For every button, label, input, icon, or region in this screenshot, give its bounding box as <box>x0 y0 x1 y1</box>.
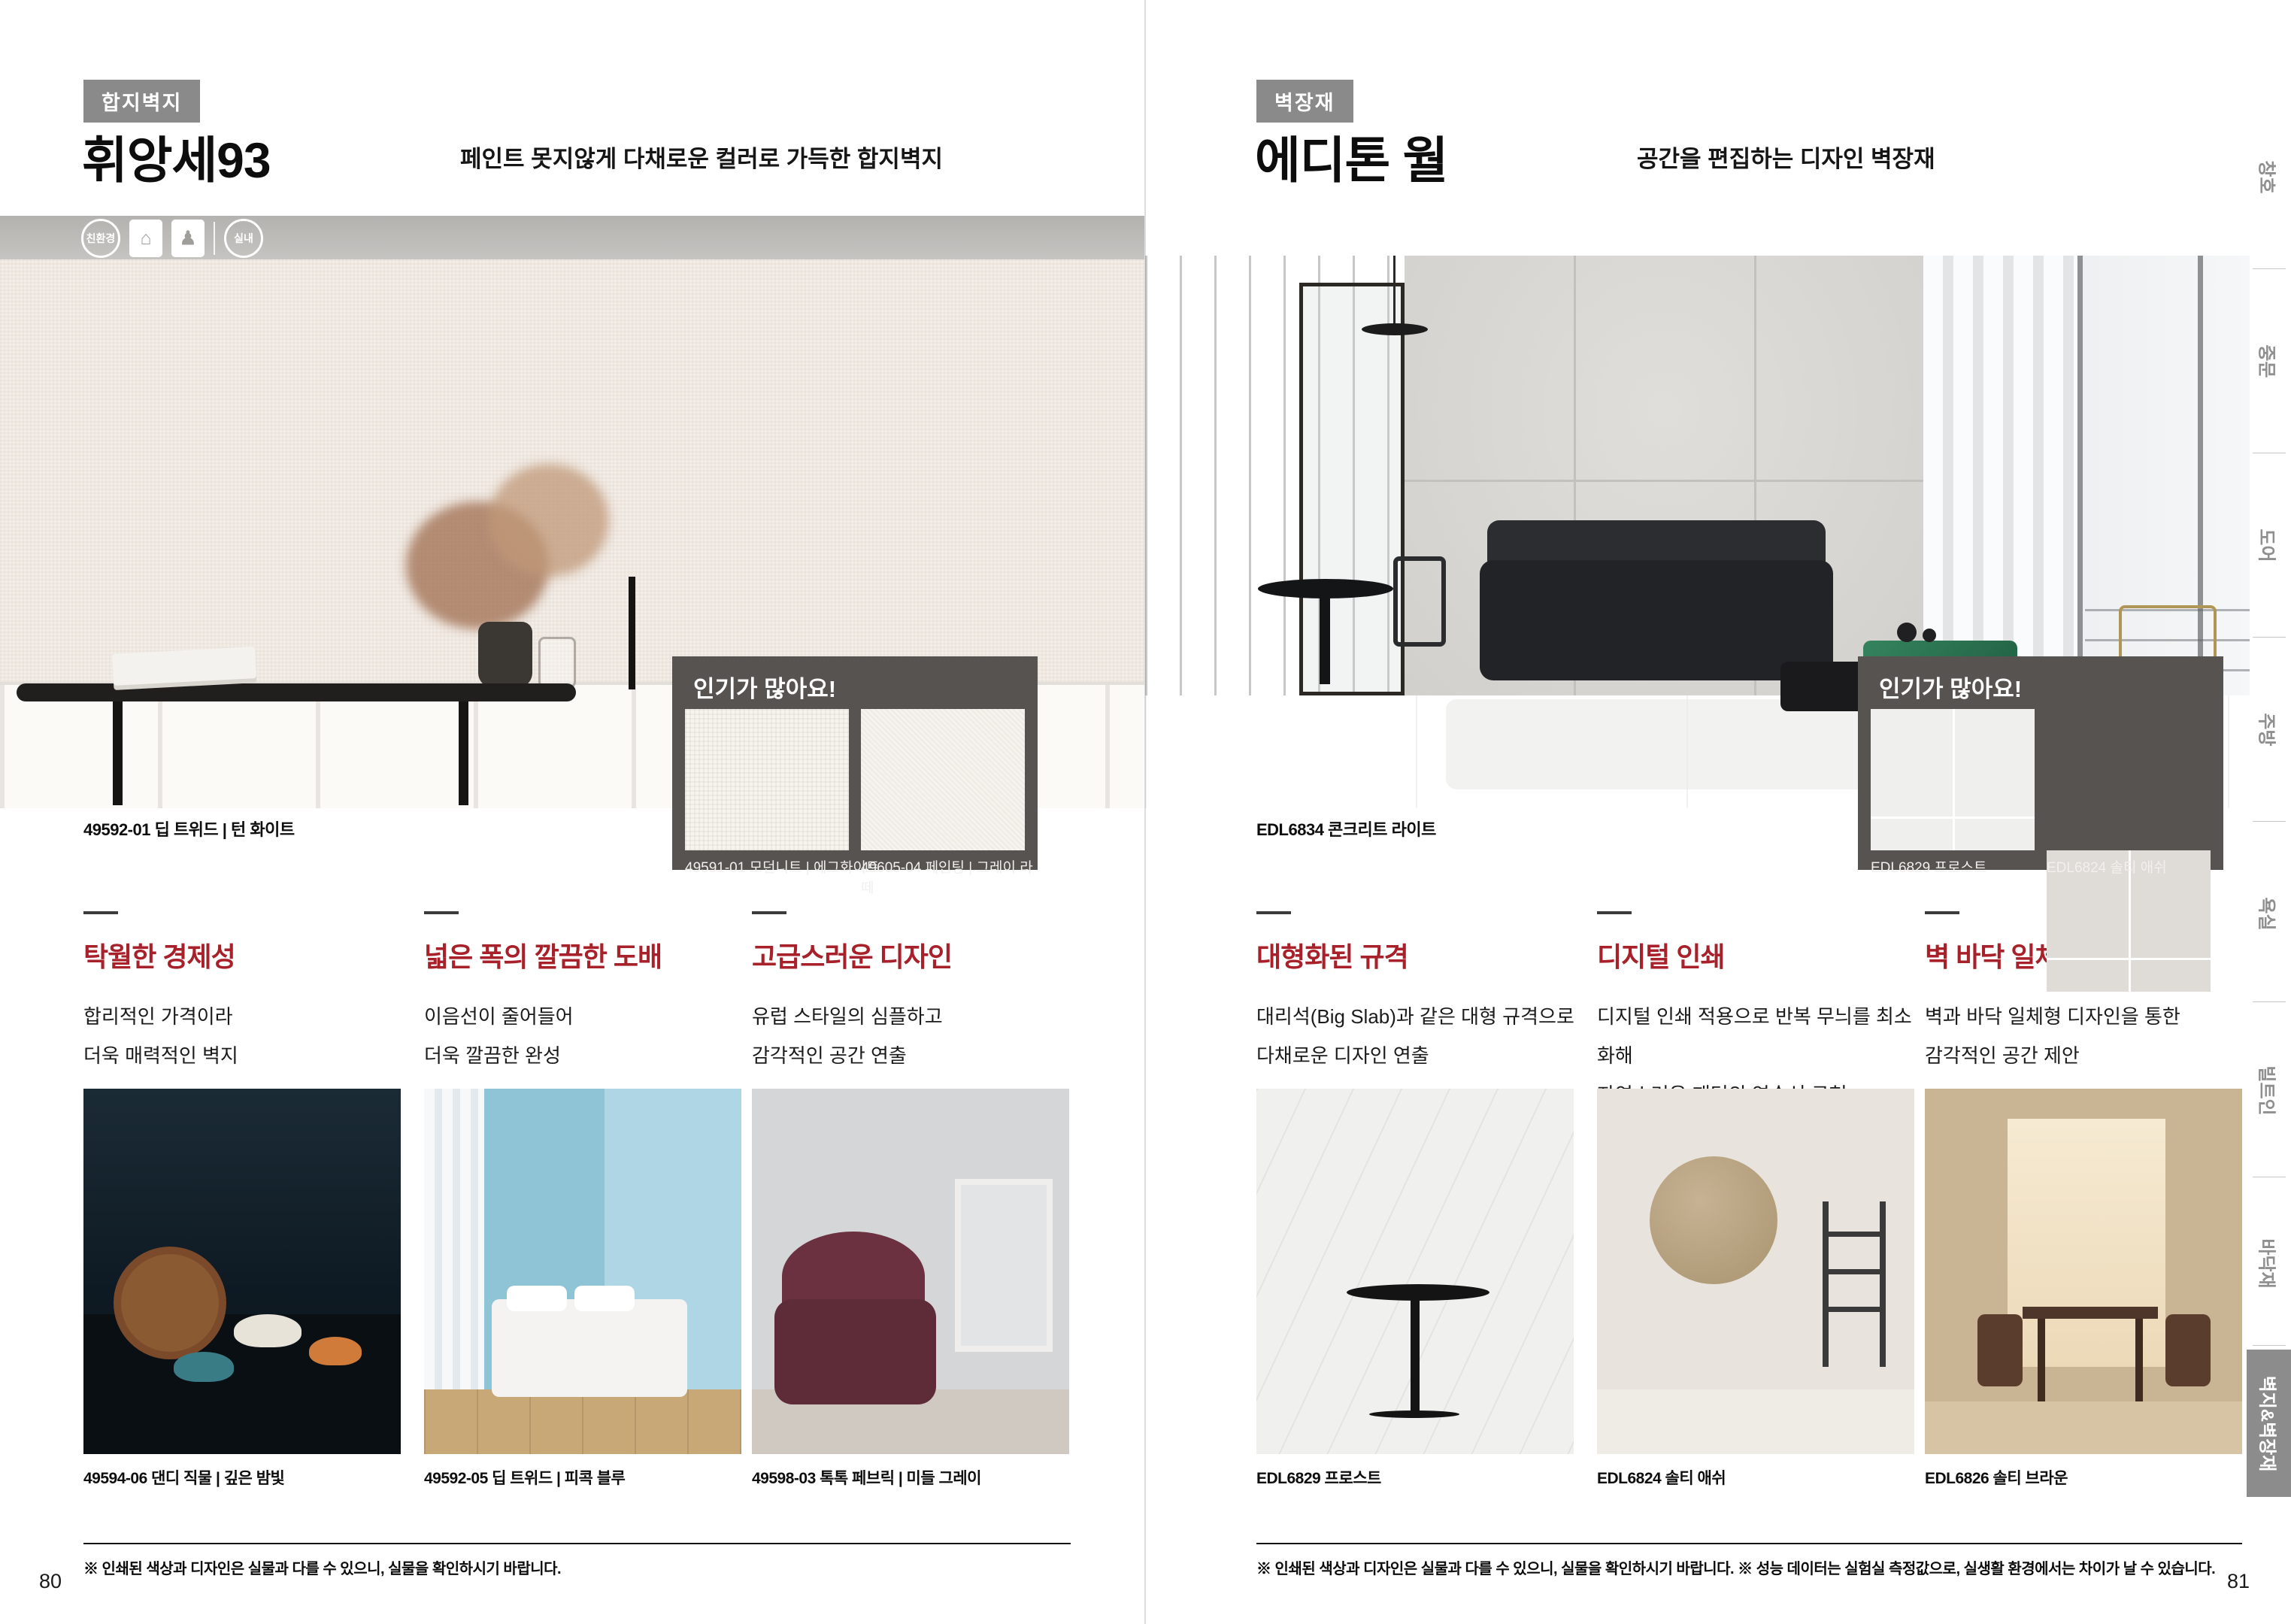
product-caption: EDL6824 솔티 애쉬 <box>1597 1466 1726 1489</box>
swatch-label: EDL6824 솔티 애쉬 <box>2047 856 2167 877</box>
ladder-rung <box>1823 1232 1886 1237</box>
round-mirror <box>1650 1156 1777 1284</box>
sidebar-separator <box>2253 453 2286 453</box>
sidebar-tab-doors[interactable]: 도어 <box>2247 500 2291 590</box>
popular-title: 인기가 많아요! <box>1879 670 2022 704</box>
feature-heading: 디지털 인쇄 <box>1597 935 1928 974</box>
feature-line: 더욱 매력적인 벽지 <box>83 1036 414 1075</box>
feature-heading: 탁월한 경제성 <box>83 935 414 974</box>
page-title-right: 에디톤 월 <box>1255 120 1447 192</box>
towel-ladder <box>1823 1201 1829 1367</box>
care-person-icon: ♟ <box>171 220 205 257</box>
feature-heading: 대형화된 규격 <box>1256 935 1587 974</box>
popular-box-left: 인기가 많아요! 49591-01 모던니트 | 에그화이트 49605-04 … <box>672 656 1038 870</box>
glass-partition <box>1299 283 1405 695</box>
boucle-armchair <box>774 1299 936 1404</box>
sidebar-separator <box>2253 268 2286 269</box>
popular-box-right: 인기가 많아요! EDL6829 프로스트 EDL6824 솔티 애쉬 <box>1858 656 2223 870</box>
tile-swatch <box>1871 709 2035 850</box>
page-number-right: 81 <box>2227 1570 2250 1593</box>
candlestick <box>629 577 635 689</box>
swatch-label: 49605-04 페인팅 | 그레이 라떼 <box>861 856 1038 897</box>
table-pedestal <box>1320 594 1330 684</box>
feature-heading: 고급스러운 디자인 <box>752 935 1083 974</box>
wallpaper-swatch <box>861 709 1025 850</box>
feature-line: 이음선이 줄어들어 <box>424 997 755 1036</box>
shelf-unit <box>955 1179 1053 1352</box>
footnote-right: ※ 인쇄된 색상과 디자인은 실물과 다를 수 있으니, 실물을 확인하시기 바… <box>1256 1543 2242 1578</box>
bowl <box>234 1314 302 1347</box>
sidebar-tab-bath[interactable]: 욕실 <box>2247 868 2291 959</box>
bowl <box>309 1337 362 1365</box>
feature-line: 감각적인 공간 제안 <box>1925 1036 2256 1075</box>
feature-line: 디지털 인쇄 적용으로 반복 무늬를 최소화해 <box>1597 997 1928 1075</box>
feature-line: 대리석(Big Slab)과 같은 대형 규격으로 <box>1256 997 1587 1036</box>
product-caption: EDL6829 프로스트 <box>1256 1466 1381 1489</box>
product-photo-dandy <box>83 1089 401 1454</box>
product-caption: 49598-03 톡톡 페브릭 | 미들 그레이 <box>752 1466 981 1489</box>
sidebar-tab-interior-doors[interactable]: 중문 <box>2247 316 2291 406</box>
feature-big-slab: 대형화된 규격 대리석(Big Slab)과 같은 대형 규격으로 다채로운 디… <box>1256 911 1587 1075</box>
product-caption: EDL6826 솔티 브라운 <box>1925 1466 2068 1489</box>
certification-badges: 친환경 ⌂ ♟ 실내 <box>81 218 263 259</box>
eco-cert-badge: 친환경 <box>81 219 120 258</box>
feature-tick <box>83 911 118 914</box>
swatch-label: EDL6829 프로스트 <box>1871 856 1986 877</box>
feature-wide-width: 넓은 폭의 깔끔한 도배 이음선이 줄어들어 더욱 깔끔한 완성 <box>424 911 755 1075</box>
feature-line: 다채로운 디자인 연출 <box>1256 1036 1587 1075</box>
feature-tick <box>1597 911 1632 914</box>
feature-line: 감각적인 공간 연출 <box>752 1036 1083 1075</box>
sidebar-separator <box>2253 1177 2286 1177</box>
badge-divider <box>214 222 215 255</box>
sidebar-tab-flooring[interactable]: 바닥재 <box>2247 1218 2291 1308</box>
wooden-tray <box>114 1247 226 1359</box>
bed <box>492 1299 687 1397</box>
pillow <box>574 1286 635 1311</box>
pendant-lamp <box>1362 323 1428 335</box>
sidebar-tab-wallpaper-active[interactable]: 벽지&벽장재 <box>2247 1350 2291 1497</box>
table-leg <box>2038 1319 2045 1401</box>
feature-line: 더욱 깔끔한 완성 <box>424 1036 755 1075</box>
product-photo-salty-brown <box>1925 1089 2242 1454</box>
chair <box>1977 1314 2023 1386</box>
sidebar-tab-built-in[interactable]: 빌트인 <box>2247 1045 2291 1135</box>
feature-line: 벽과 바닥 일체형 디자인을 통한 <box>1925 997 2256 1036</box>
sofa <box>1480 560 1833 680</box>
towel-ladder <box>1880 1201 1886 1367</box>
table-leg <box>2135 1319 2143 1401</box>
feature-heading: 넓은 폭의 깔끔한 도배 <box>424 935 755 974</box>
feature-line: 합리적인 가격이라 <box>83 997 414 1036</box>
ladder-rung <box>1823 1269 1886 1274</box>
category-badge-left: 합지벽지 <box>83 80 200 123</box>
dark-vase <box>478 622 532 688</box>
table-base <box>1369 1410 1459 1418</box>
pillow <box>507 1286 567 1311</box>
page-number-left: 80 <box>39 1570 62 1593</box>
feature-tick <box>1925 911 1959 914</box>
decor-sphere <box>1923 629 1936 642</box>
page-subtitle-right: 공간을 편집하는 디자인 벽장재 <box>1637 140 1935 174</box>
hero-caption-left: 49592-01 딥 트위드 | 턴 화이트 <box>83 817 295 841</box>
indoor-use-badge: 실내 <box>224 219 263 258</box>
curtain <box>1923 256 2077 695</box>
grout-line <box>1405 480 1923 482</box>
category-badge-right: 벽장재 <box>1256 80 1353 123</box>
sidebar-separator <box>2253 1001 2286 1002</box>
feature-tick <box>424 911 459 914</box>
eco-house-icon: ⌂ <box>129 220 162 257</box>
floor <box>1925 1401 2242 1454</box>
popular-title: 인기가 많아요! <box>693 670 836 704</box>
product-photo-salty-ash <box>1597 1089 1914 1454</box>
page-subtitle-left: 페인트 못지않게 다채로운 컬러로 가득한 합지벽지 <box>460 140 943 174</box>
sidebar-separator <box>2253 821 2286 822</box>
feature-tick <box>1256 911 1291 914</box>
wood-floor <box>424 1389 741 1454</box>
feature-economy: 탁월한 경제성 합리적인 가격이라 더욱 매력적인 벽지 <box>83 911 414 1075</box>
feature-line: 유럽 스타일의 심플하고 <box>752 997 1083 1036</box>
bowl <box>174 1352 234 1382</box>
pendant-cord <box>1393 256 1396 325</box>
chair <box>1393 556 1446 647</box>
page-divider <box>1144 0 1146 1624</box>
footnote-left: ※ 인쇄된 색상과 디자인은 실물과 다를 수 있으니, 실물을 확인하시기 바… <box>83 1543 1071 1578</box>
product-photo-frost <box>1256 1089 1574 1454</box>
sidebar-separator <box>2253 1345 2286 1346</box>
sidebar-tab-windows[interactable]: 창호 <box>2247 132 2291 222</box>
feature-premium-design: 고급스러운 디자인 유럽 스타일의 심플하고 감각적인 공간 연출 <box>752 911 1083 1075</box>
product-photo-bedroom <box>424 1089 741 1454</box>
product-caption: 49594-06 댄디 직물 | 깊은 밤빛 <box>83 1466 284 1489</box>
feature-digital-print: 디지털 인쇄 디지털 인쇄 적용으로 반복 무늬를 최소화해 자연스러운 패턴의… <box>1597 911 1928 1114</box>
curtain <box>424 1089 484 1389</box>
product-caption: 49592-05 딥 트위드 | 피콕 블루 <box>424 1466 625 1489</box>
table-leg <box>459 701 468 805</box>
ladder-rung <box>1823 1307 1886 1312</box>
product-photo-armchair <box>752 1089 1069 1454</box>
decor-sphere <box>1897 623 1917 642</box>
floor <box>1597 1389 1914 1454</box>
feature-tick <box>752 911 786 914</box>
catalog-spread: 합지벽지 휘앙세93 페인트 못지않게 다채로운 컬러로 가득한 합지벽지 친환… <box>0 0 2291 1624</box>
sidebar-tab-kitchen[interactable]: 주방 <box>2247 684 2291 774</box>
dried-flowers <box>489 464 609 577</box>
window-frame <box>2077 256 2083 695</box>
hero-caption-right: EDL6834 콘크리트 라이트 <box>1256 817 1436 841</box>
swatch-label: 49591-01 모던니트 | 에그화이트 <box>685 856 879 877</box>
wallpaper-swatch <box>685 709 849 850</box>
console-table <box>17 683 576 701</box>
chair <box>2165 1314 2211 1386</box>
table-leg <box>113 701 123 805</box>
sidebar-separator <box>2253 637 2286 638</box>
table-leg <box>1411 1296 1420 1416</box>
glass-vase <box>538 637 576 688</box>
page-title-left: 휘앙세93 <box>82 120 271 192</box>
wood-table <box>2023 1307 2158 1319</box>
